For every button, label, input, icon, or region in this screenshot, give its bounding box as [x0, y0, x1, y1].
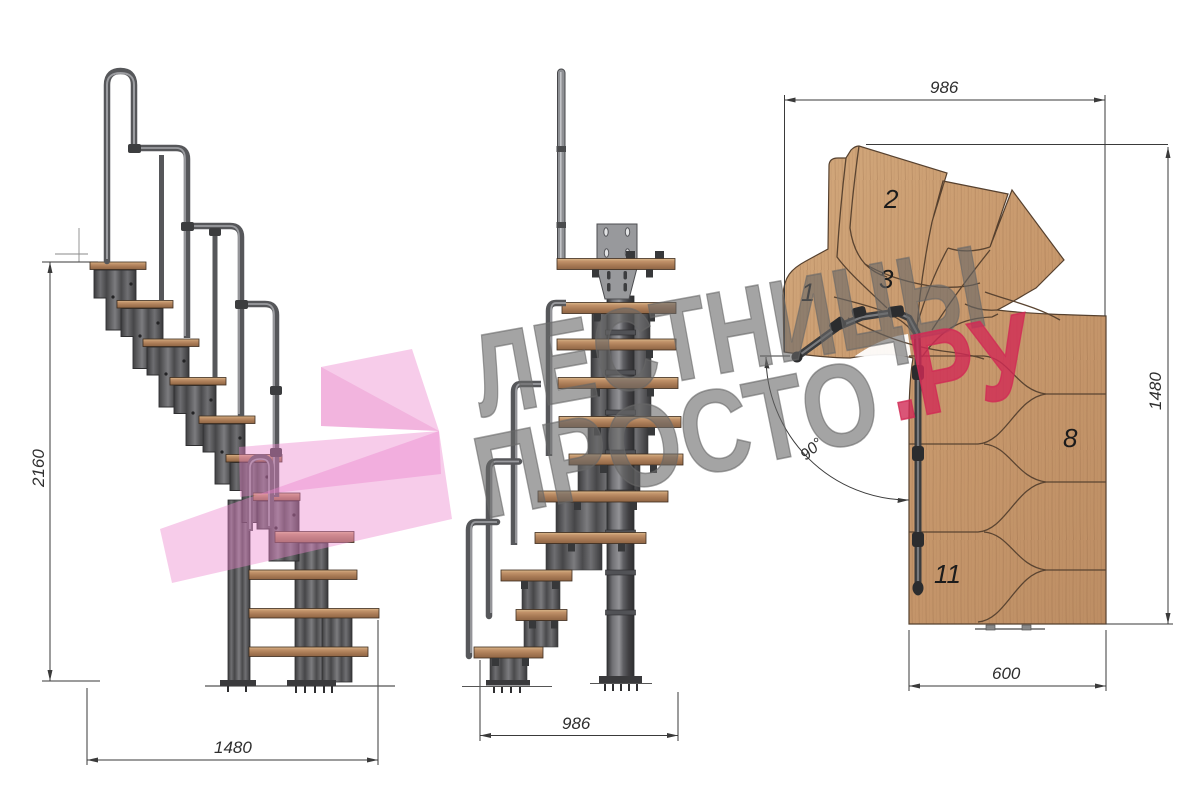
svg-text:1480: 1480 — [214, 738, 252, 757]
svg-text:986: 986 — [562, 714, 591, 733]
svg-text:1480: 1480 — [1146, 372, 1165, 410]
svg-text:8: 8 — [1063, 423, 1078, 453]
svg-text:600: 600 — [992, 664, 1021, 683]
svg-text:986: 986 — [930, 78, 959, 97]
svg-text:2160: 2160 — [29, 449, 48, 488]
svg-text:2: 2 — [883, 184, 899, 214]
svg-text:11: 11 — [934, 559, 961, 589]
